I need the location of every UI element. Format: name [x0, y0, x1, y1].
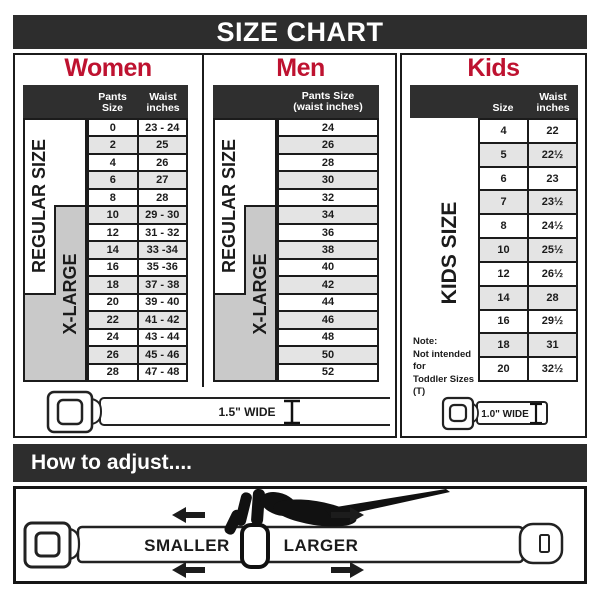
table-cell: 10 — [478, 237, 529, 263]
men-table-rows: 242628303234363840424446485052 — [277, 118, 379, 382]
table-cell: 7 — [478, 189, 529, 215]
table-row: 1226½ — [478, 261, 578, 287]
table-cell: 28 — [87, 363, 139, 382]
table-cell: 28 — [527, 285, 578, 311]
page-title: SIZE CHART — [217, 17, 384, 48]
kids-note: Note: Not intended for Toddler Sizes (T) — [413, 336, 485, 399]
table-cell: 29½ — [527, 309, 578, 335]
left-arrow-icon — [172, 562, 205, 578]
title-bar: SIZE CHART — [13, 15, 587, 49]
women-heading: Women — [13, 55, 203, 82]
women-xlarge-label: X-LARGE — [60, 254, 80, 335]
how-to-adjust-title: How to adjust.... — [31, 451, 192, 475]
table-row: 723½ — [478, 189, 578, 215]
table-row: 1629½ — [478, 309, 578, 335]
buckle-button — [36, 533, 59, 556]
belt-adjuster-slider — [242, 525, 268, 567]
table-cell: 5 — [478, 142, 529, 168]
men-col-pants-size: Pants Size (waist inches) — [277, 91, 379, 113]
table-cell: 23½ — [527, 189, 578, 215]
table-cell: 52 — [277, 363, 379, 382]
men-xlarge-label: X-LARGE — [250, 254, 270, 335]
table-cell: 8 — [478, 213, 529, 239]
men-table-header: Pants Size (waist inches) — [213, 85, 379, 118]
table-cell: 26½ — [527, 261, 578, 287]
how-to-adjust-bar: How to adjust.... — [13, 444, 587, 482]
table-cell: 6 — [478, 166, 529, 192]
women-men-divider — [202, 53, 204, 387]
table-row: 52 — [277, 363, 379, 382]
belt-width-label: 1.0" WIDE — [481, 409, 529, 420]
table-cell: 14 — [478, 285, 529, 311]
table-row: 522½ — [478, 142, 578, 168]
table-row: 824½ — [478, 213, 578, 239]
kids-heading: Kids — [400, 55, 587, 82]
buckle-tongue — [92, 399, 101, 424]
belt-width-label: 1.5" WIDE — [218, 405, 275, 419]
women-col-pants-size: Pants Size — [87, 92, 138, 114]
men-heading: Men — [204, 55, 397, 82]
buckle-button — [58, 400, 82, 424]
table-cell: 12 — [478, 261, 529, 287]
table-cell: 18 — [478, 332, 529, 358]
size-chart-infographic: SIZE CHART Women Men Kids Pants Size Wai… — [0, 0, 600, 600]
buckle-button — [450, 405, 466, 421]
table-cell: 32½ — [527, 356, 578, 382]
left-arrow-icon — [172, 507, 205, 523]
kids-table-header: Size Waist inches — [410, 85, 578, 118]
kids-size-label: KIDS SIZE — [438, 202, 461, 305]
table-row: 1428 — [478, 285, 578, 311]
women-table-rows: 023 - 242254266278281029 - 301231 - 3214… — [87, 118, 188, 382]
adjust-belt-illustration: SMALLER LARGER — [16, 489, 584, 581]
table-cell: 20 — [478, 356, 529, 382]
table-row: 1831 — [478, 332, 578, 358]
women-table-header: Pants Size Waist inches — [23, 85, 188, 118]
men-size-category-labels: REGULAR SIZE X-LARGE — [213, 118, 277, 382]
table-cell: 22½ — [527, 142, 578, 168]
table-cell: 23 — [527, 166, 578, 192]
table-row: 2032½ — [478, 356, 578, 382]
smaller-label: SMALLER — [144, 536, 230, 555]
kids-col-waist: Waist inches — [528, 92, 578, 114]
table-row: 1025½ — [478, 237, 578, 263]
men-regular-size-label: REGULAR SIZE — [219, 139, 239, 273]
belt-width-1-5-illustration: 1.5" WIDE — [40, 388, 390, 438]
belt-tip-slot — [540, 535, 549, 552]
kids-col-size: Size — [478, 103, 528, 114]
right-arrow-icon — [331, 562, 364, 578]
table-cell: 47 - 48 — [137, 363, 189, 382]
women-regular-size-label: REGULAR SIZE — [29, 139, 49, 273]
table-row: 422 — [478, 118, 578, 144]
women-col-waist: Waist inches — [138, 92, 188, 114]
table-cell: 16 — [478, 309, 529, 335]
table-cell: 4 — [478, 118, 529, 144]
women-size-category-labels: REGULAR SIZE X-LARGE — [23, 118, 87, 382]
table-row: 2847 - 48 — [87, 363, 188, 382]
table-cell: 25½ — [527, 237, 578, 263]
belt-width-1-0-illustration: 1.0" WIDE — [435, 393, 555, 435]
table-cell: 24½ — [527, 213, 578, 239]
table-cell: 22 — [527, 118, 578, 144]
adjust-illustration-panel: SMALLER LARGER — [13, 486, 587, 584]
table-row: 623 — [478, 166, 578, 192]
kids-table-rows: 422522½623723½824½1025½1226½14281629½183… — [478, 118, 578, 382]
table-cell: 31 — [527, 332, 578, 358]
larger-label: LARGER — [284, 536, 359, 555]
